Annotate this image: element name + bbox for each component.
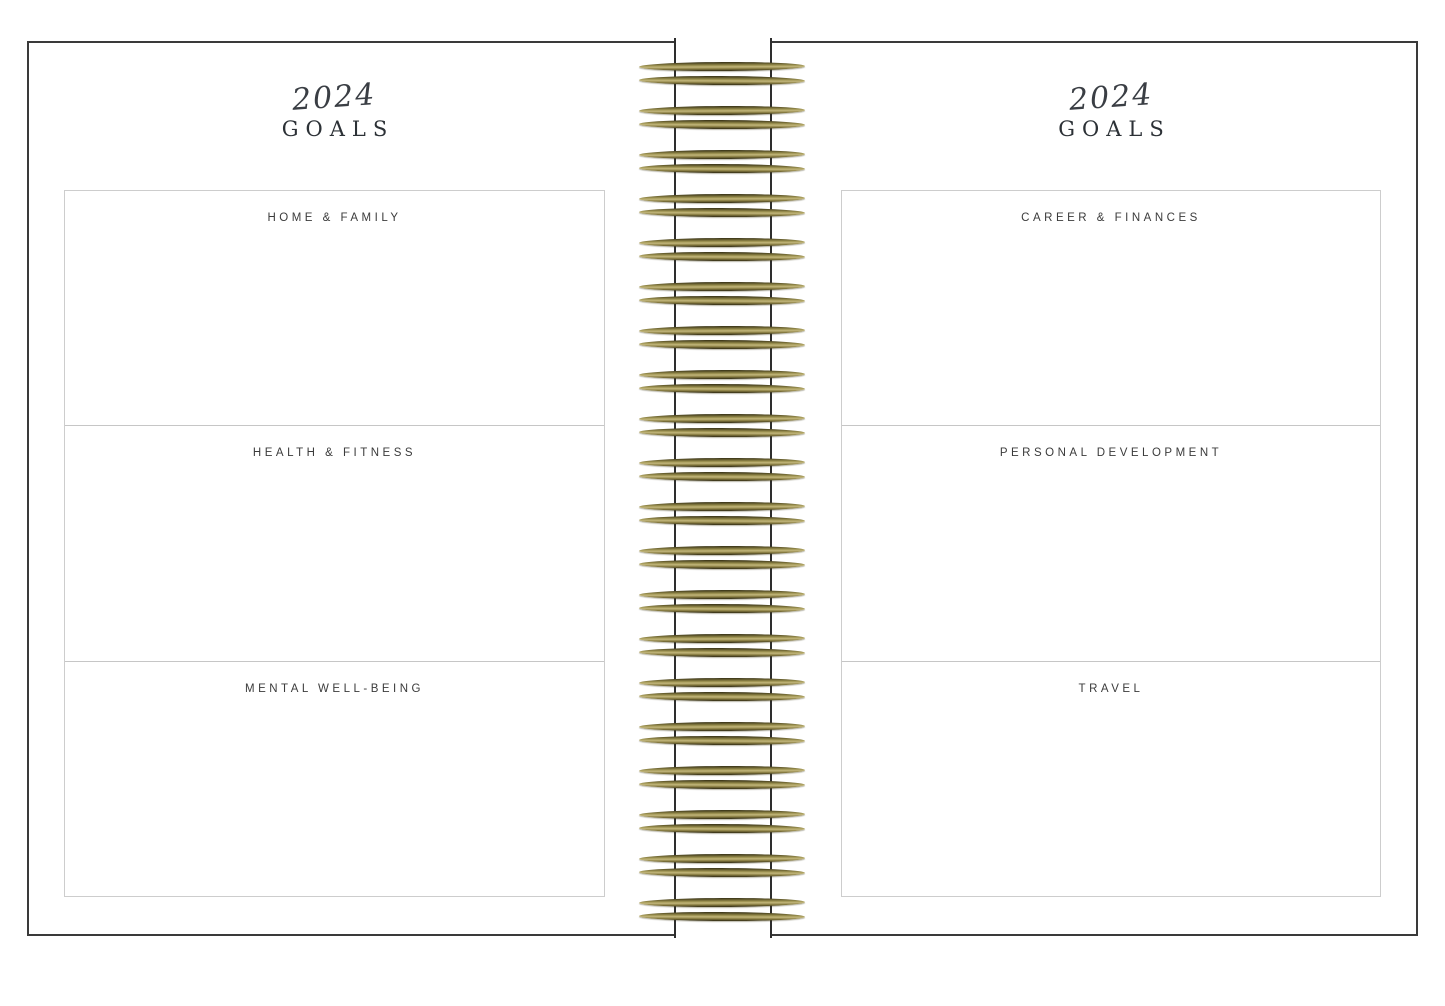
goal-section-mental-well-being: MENTAL WELL-BEING [65, 661, 604, 896]
page-title-right: GOALS [841, 119, 1381, 140]
goal-section-label: TRAVEL [842, 662, 1380, 695]
page-title-left: GOALS [64, 119, 605, 140]
goal-section-home-family: HOME & FAMILY [65, 191, 604, 425]
goal-section-career-finances: CAREER & FINANCES [842, 191, 1380, 425]
goal-section-personal-development: PERSONAL DEVELOPMENT [842, 425, 1380, 660]
notes-area [65, 235, 604, 425]
goal-box-left: HOME & FAMILY HEALTH & FITNESS MENTAL WE… [64, 190, 605, 897]
page-left-header: 2024 GOALS [64, 83, 605, 140]
notes-area [65, 470, 604, 660]
notes-area [65, 706, 604, 896]
page-right: 2024 GOALS CAREER & FINANCES PERSONAL DE… [841, 41, 1381, 936]
goal-section-label: HOME & FAMILY [65, 191, 604, 224]
page-right-header: 2024 GOALS [841, 83, 1381, 140]
page-left: 2024 GOALS HOME & FAMILY HEALTH & FITNES… [64, 41, 605, 936]
goal-section-travel: TRAVEL [842, 661, 1380, 896]
notes-area [842, 470, 1380, 660]
year-script-right: 2024 [1068, 80, 1154, 116]
goal-section-label: HEALTH & FITNESS [65, 426, 604, 459]
planner-goals-spread: 2024 GOALS HOME & FAMILY HEALTH & FITNES… [0, 0, 1445, 1006]
binding-gutter [674, 38, 772, 938]
year-script-left: 2024 [291, 80, 377, 116]
goal-box-right: CAREER & FINANCES PERSONAL DEVELOPMENT T… [841, 190, 1381, 897]
goal-section-label: CAREER & FINANCES [842, 191, 1380, 224]
goal-section-label: MENTAL WELL-BEING [65, 662, 604, 695]
goal-section-health-fitness: HEALTH & FITNESS [65, 425, 604, 660]
notes-area [842, 235, 1380, 425]
notes-area [842, 706, 1380, 896]
goal-section-label: PERSONAL DEVELOPMENT [842, 426, 1380, 459]
